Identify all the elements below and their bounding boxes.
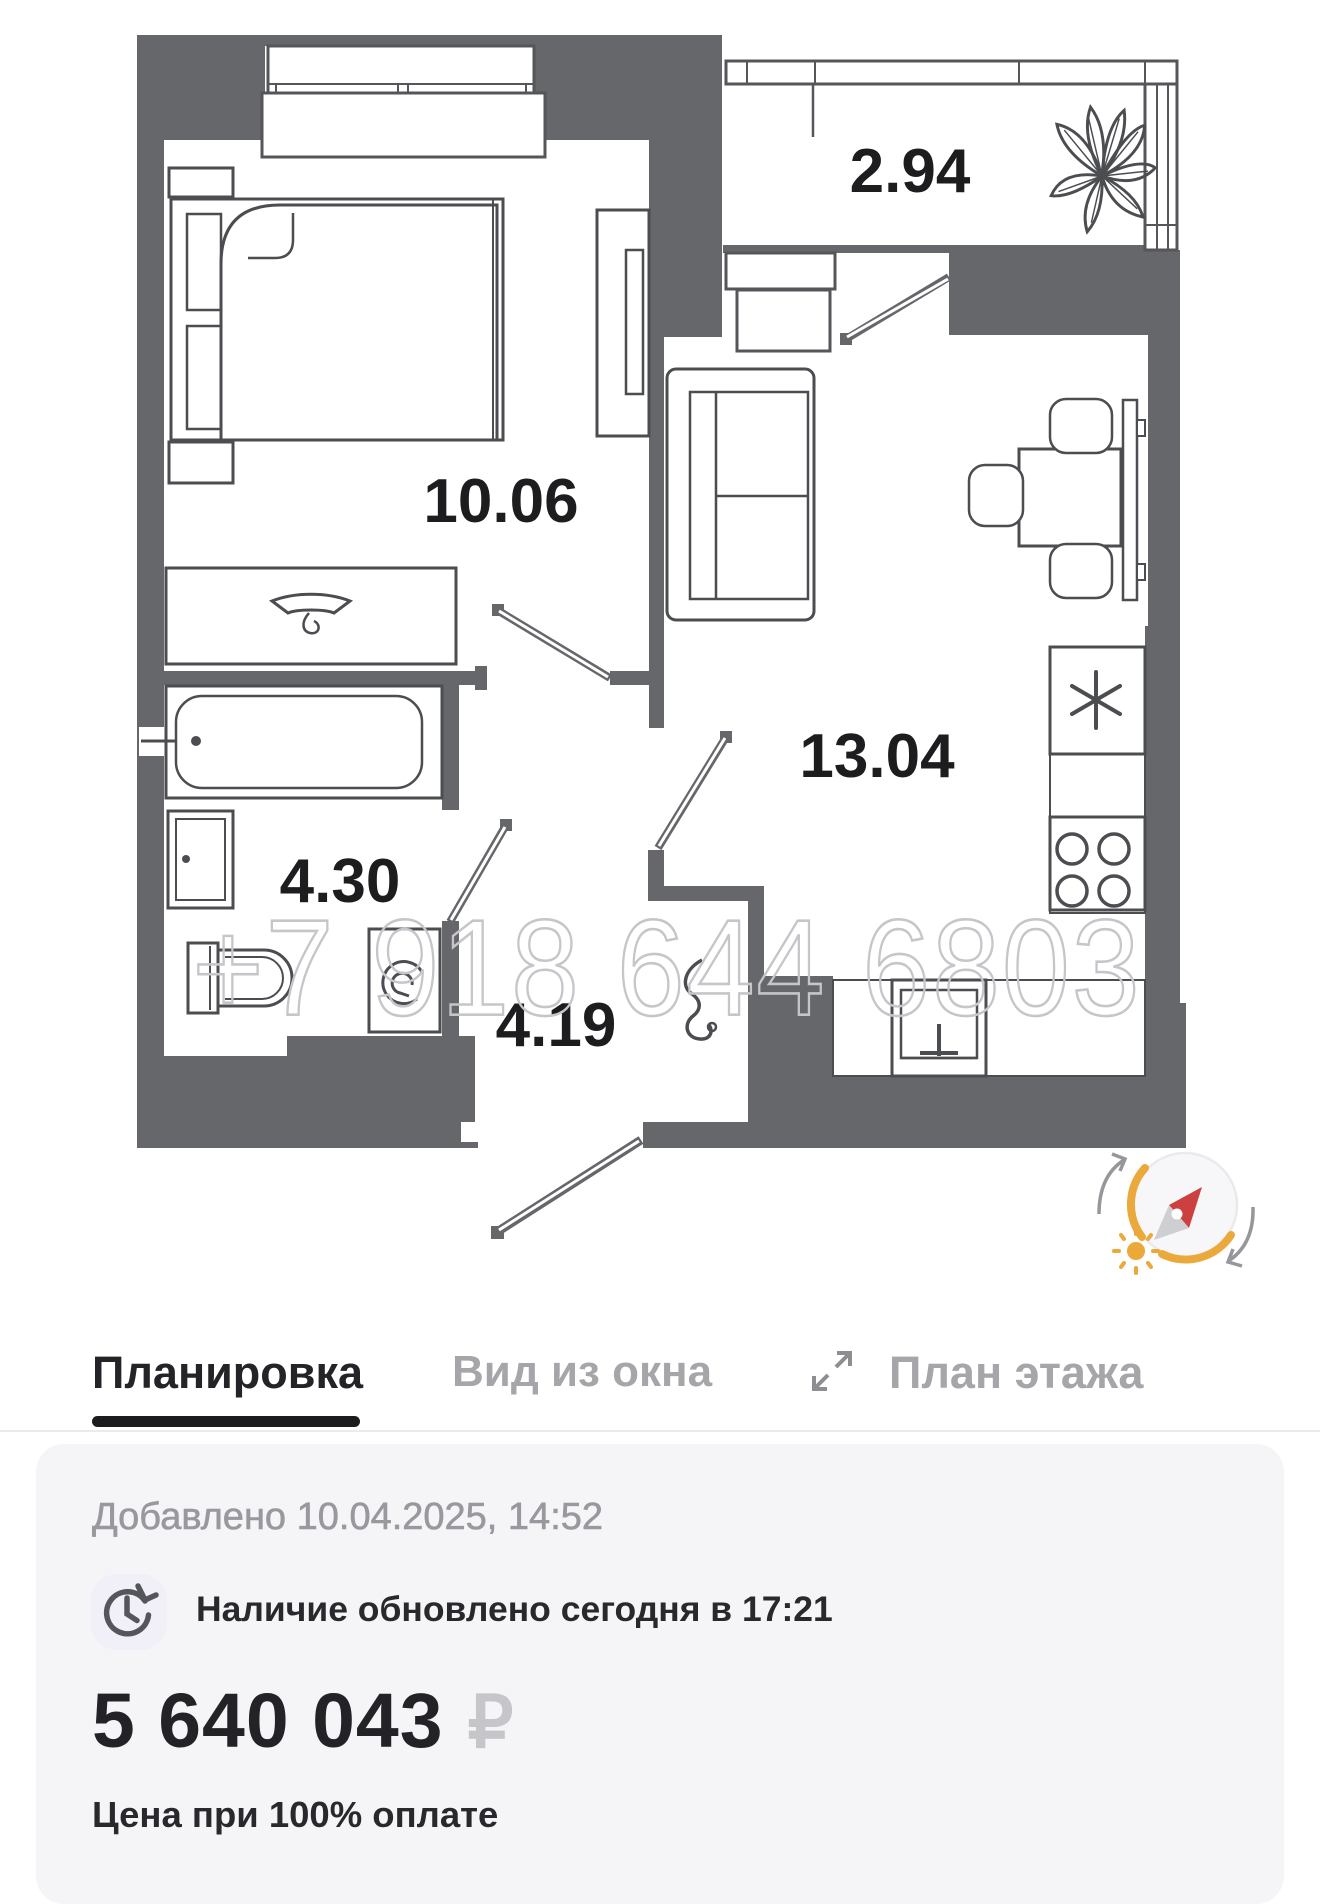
svg-text:10.06: 10.06 [423, 467, 578, 536]
svg-text:+7 918 644 6803: +7 918 644 6803 [192, 892, 1141, 1044]
svg-text:2.94: 2.94 [850, 137, 971, 206]
svg-text:13.04: 13.04 [799, 722, 955, 791]
